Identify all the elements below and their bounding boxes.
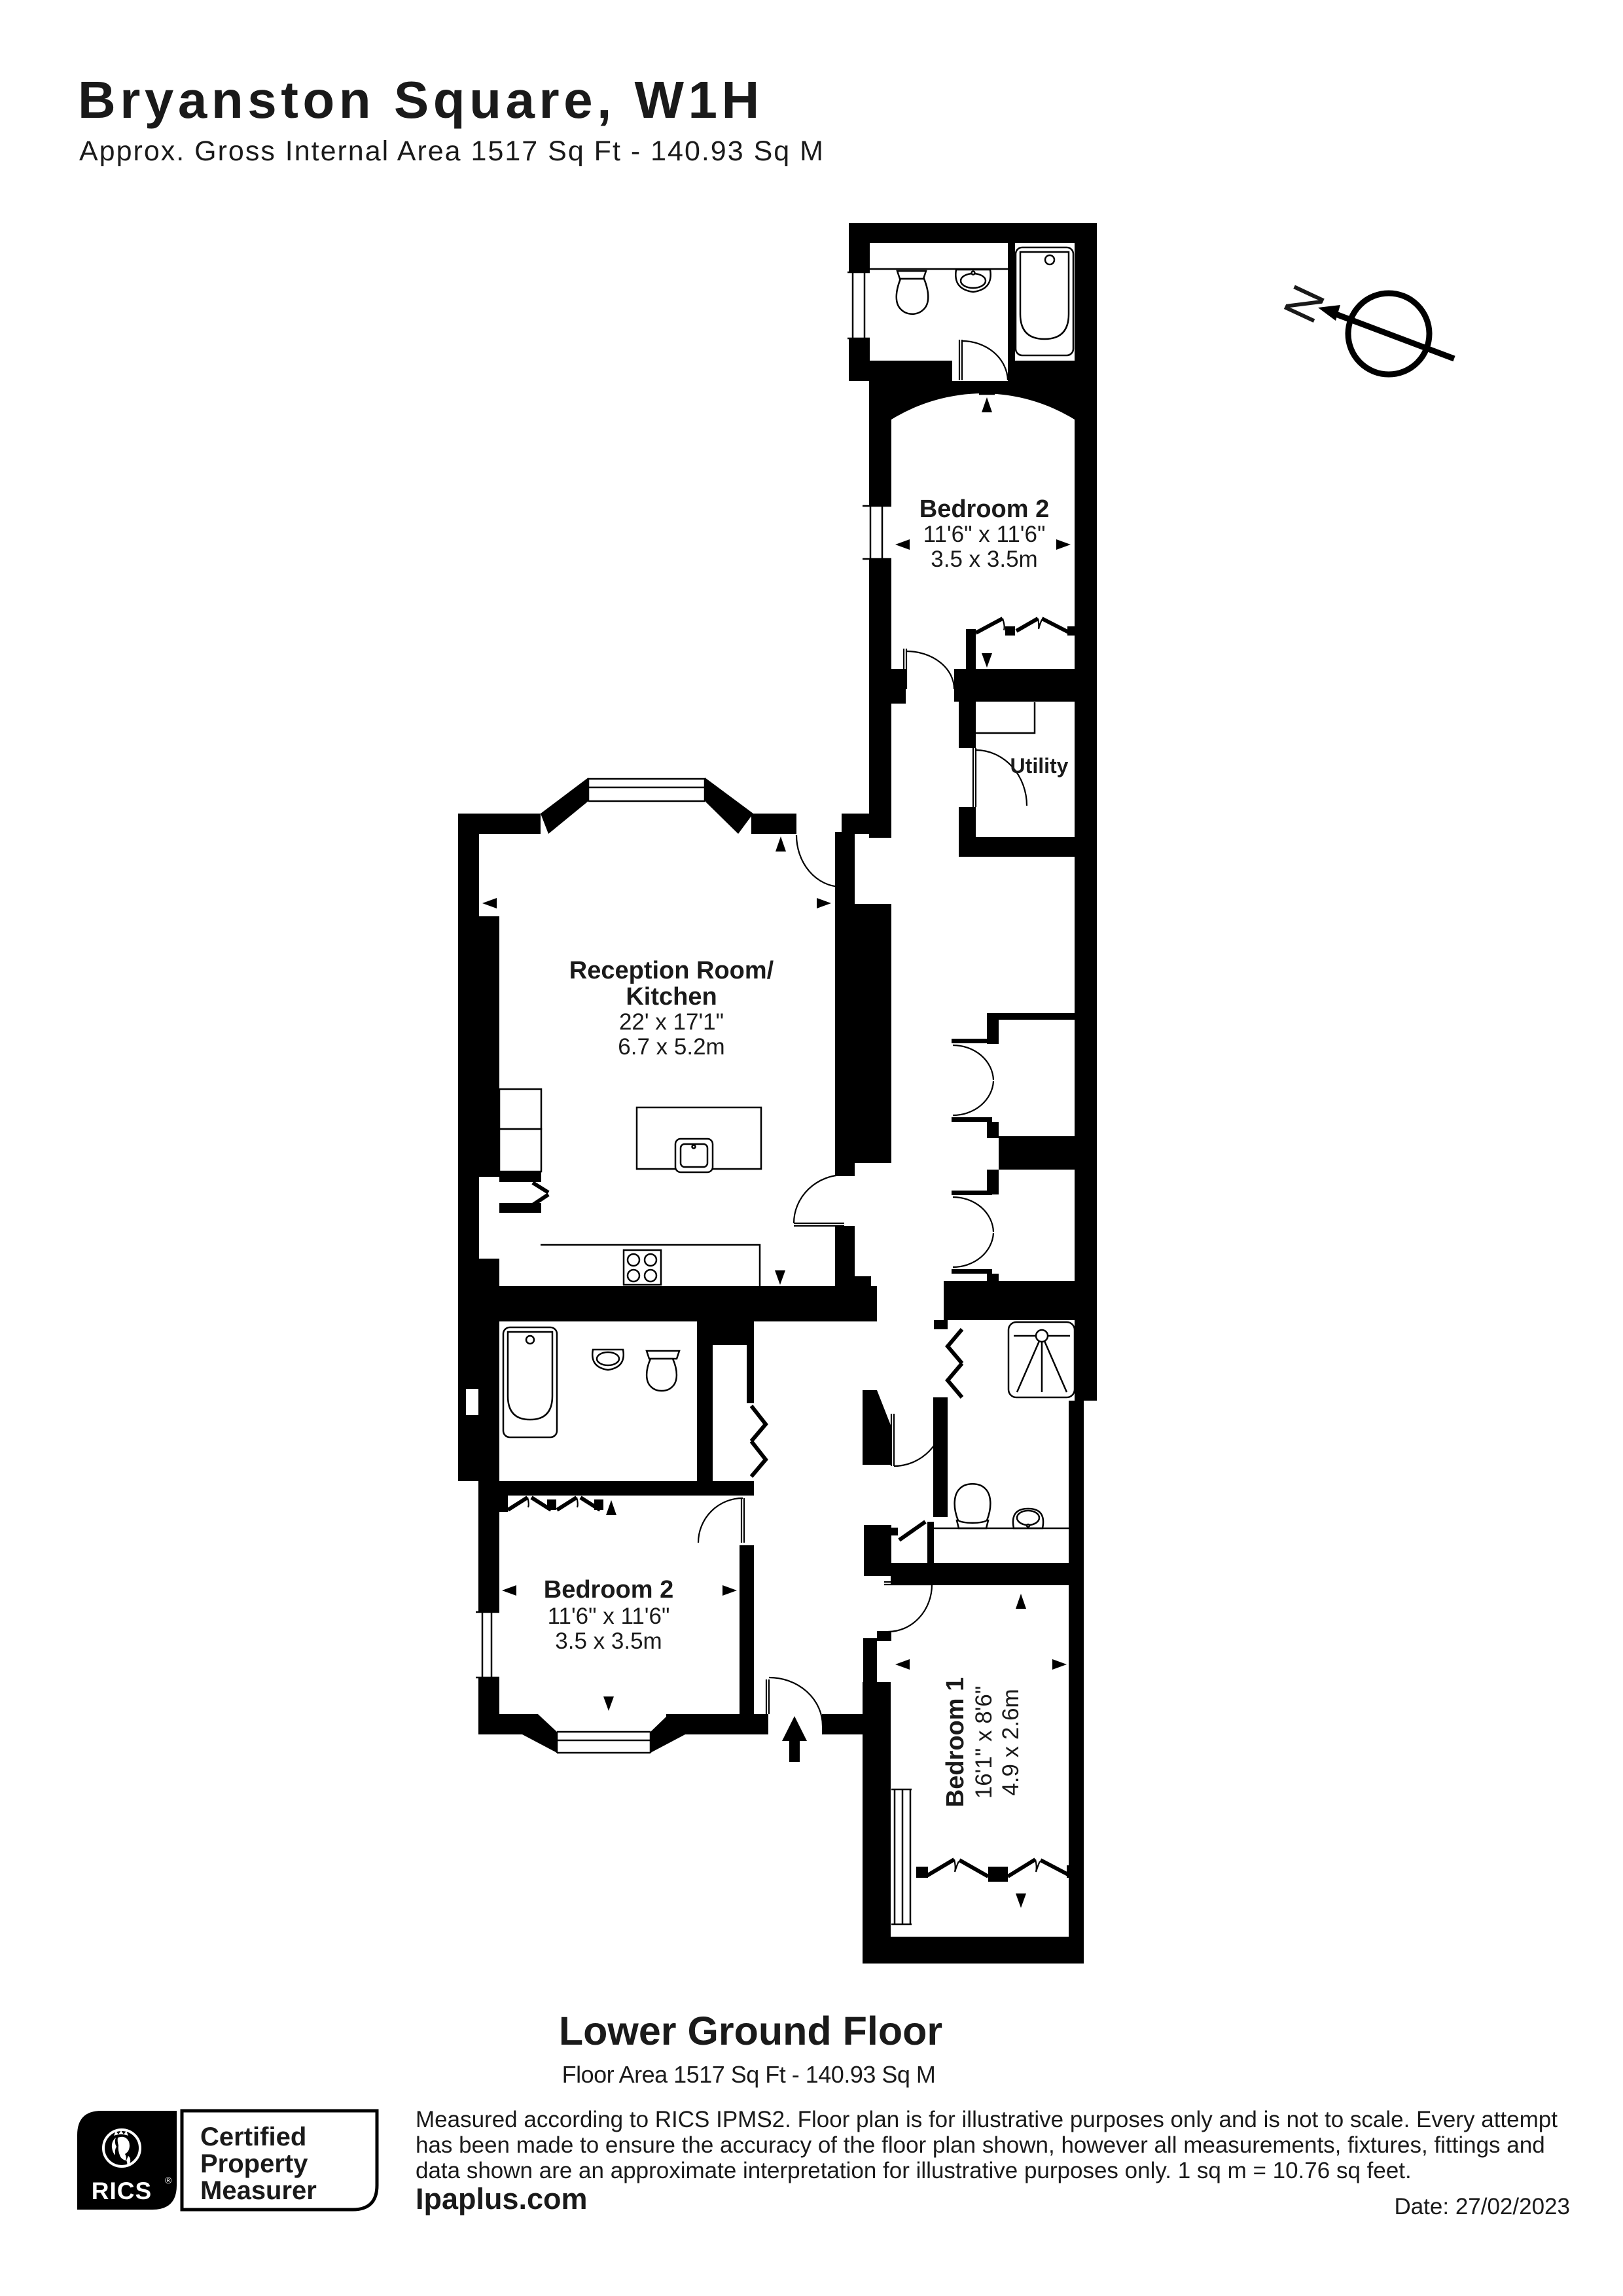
svg-text:6.7 x 5.2m: 6.7 x 5.2m bbox=[618, 1034, 724, 1060]
svg-text:Property: Property bbox=[200, 2149, 308, 2178]
svg-text:4.9 x 2.6m: 4.9 x 2.6m bbox=[998, 1689, 1024, 1795]
svg-text:Bedroom 2: Bedroom 2 bbox=[919, 495, 1049, 523]
svg-text:11'6" x 11'6": 11'6" x 11'6" bbox=[923, 522, 1046, 547]
svg-text:Ipaplus.com: Ipaplus.com bbox=[416, 2182, 588, 2215]
svg-text:Bedroom 2: Bedroom 2 bbox=[544, 1576, 673, 1604]
svg-text:has been made to ensure the ac: has been made to ensure the accuracy of … bbox=[416, 2132, 1545, 2158]
svg-text:Bryanston Square, W1H: Bryanston Square, W1H bbox=[78, 71, 764, 129]
svg-text:Kitchen: Kitchen bbox=[626, 983, 717, 1011]
svg-text:Certified: Certified bbox=[200, 2123, 306, 2151]
svg-text:22' x 17'1": 22' x 17'1" bbox=[619, 1009, 724, 1035]
svg-text:Utility: Utility bbox=[1010, 754, 1069, 778]
svg-text:®: ® bbox=[165, 2175, 172, 2185]
svg-text:RICS: RICS bbox=[92, 2178, 152, 2204]
svg-text:Bedroom 1: Bedroom 1 bbox=[942, 1677, 969, 1807]
svg-text:data shown are an approximate: data shown are an approximate interpreta… bbox=[416, 2158, 1412, 2183]
svg-text:11'6" x 11'6": 11'6" x 11'6" bbox=[548, 1604, 670, 1629]
svg-text:Date: 27/02/2023: Date: 27/02/2023 bbox=[1394, 2194, 1570, 2219]
svg-text:Lower Ground Floor: Lower Ground Floor bbox=[559, 2009, 942, 2053]
svg-text:Floor Area 1517 Sq Ft - 140.93: Floor Area 1517 Sq Ft - 140.93 Sq M bbox=[562, 2061, 936, 2088]
svg-text:3.5 x 3.5m: 3.5 x 3.5m bbox=[555, 1628, 662, 1654]
svg-text:Reception Room/: Reception Room/ bbox=[569, 957, 774, 984]
svg-text:3.5 x 3.5m: 3.5 x 3.5m bbox=[931, 547, 1037, 572]
svg-text:Measurer: Measurer bbox=[200, 2176, 317, 2205]
svg-text:Measured according to RICS IPM: Measured according to RICS IPMS2. Floor … bbox=[416, 2107, 1558, 2132]
svg-text:Approx. Gross Internal Area 15: Approx. Gross Internal Area 1517 Sq Ft -… bbox=[79, 135, 825, 167]
svg-text:16'1" x 8'6": 16'1" x 8'6" bbox=[971, 1686, 997, 1799]
